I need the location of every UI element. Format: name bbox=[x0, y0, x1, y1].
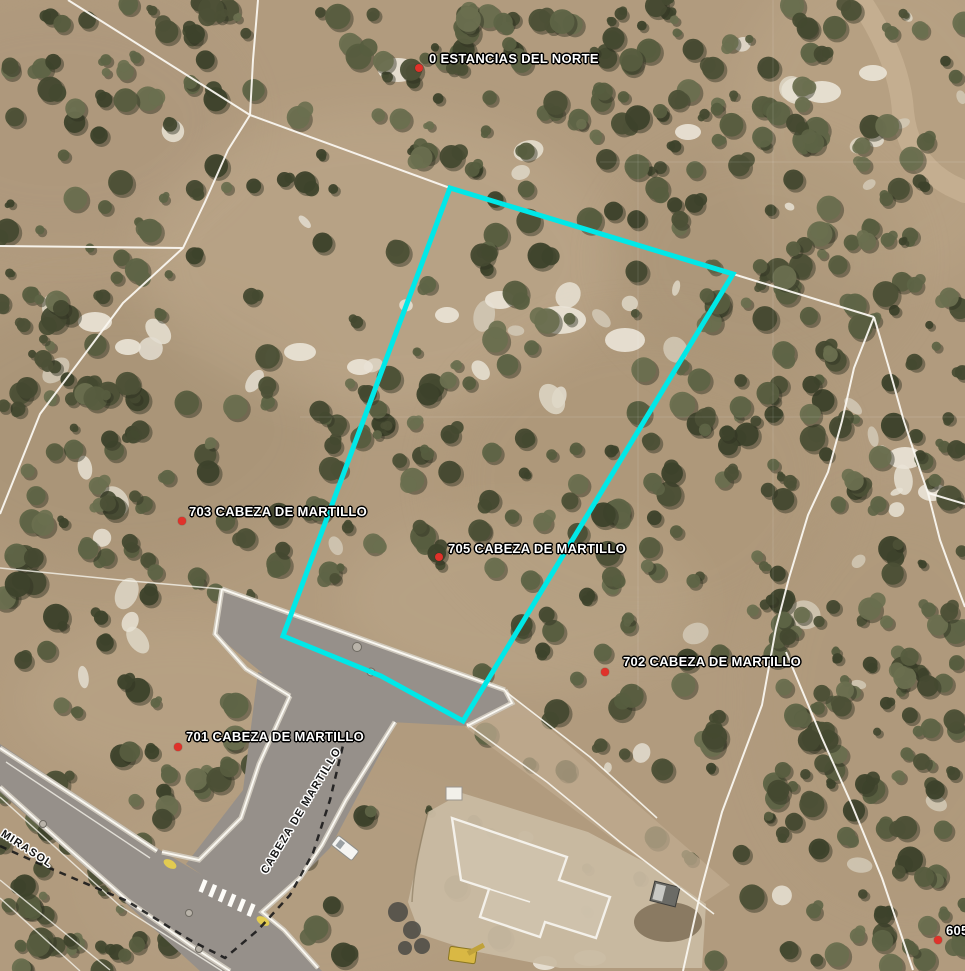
address-point-dot[interactable] bbox=[174, 743, 182, 751]
address-point-dot[interactable] bbox=[435, 553, 443, 561]
parcel-address-label: 605 bbox=[946, 923, 965, 938]
map-canvas[interactable]: 0 ESTANCIAS DEL NORTE703 CABEZA DE MARTI… bbox=[0, 0, 965, 971]
aerial-imagery bbox=[0, 0, 965, 971]
parcel-address-label: 703 CABEZA DE MARTILLO bbox=[189, 504, 367, 519]
parcel-address-label: 705 CABEZA DE MARTILLO bbox=[448, 541, 626, 556]
parcel-address-label: 0 ESTANCIAS DEL NORTE bbox=[429, 51, 599, 66]
address-point-dot[interactable] bbox=[415, 64, 423, 72]
parcel-address-label: 702 CABEZA DE MARTILLO bbox=[623, 654, 801, 669]
address-point-dot[interactable] bbox=[178, 517, 186, 525]
address-point-dot[interactable] bbox=[601, 668, 609, 676]
parcel-address-label: 701 CABEZA DE MARTILLO bbox=[186, 729, 364, 744]
address-point-dot[interactable] bbox=[934, 936, 942, 944]
